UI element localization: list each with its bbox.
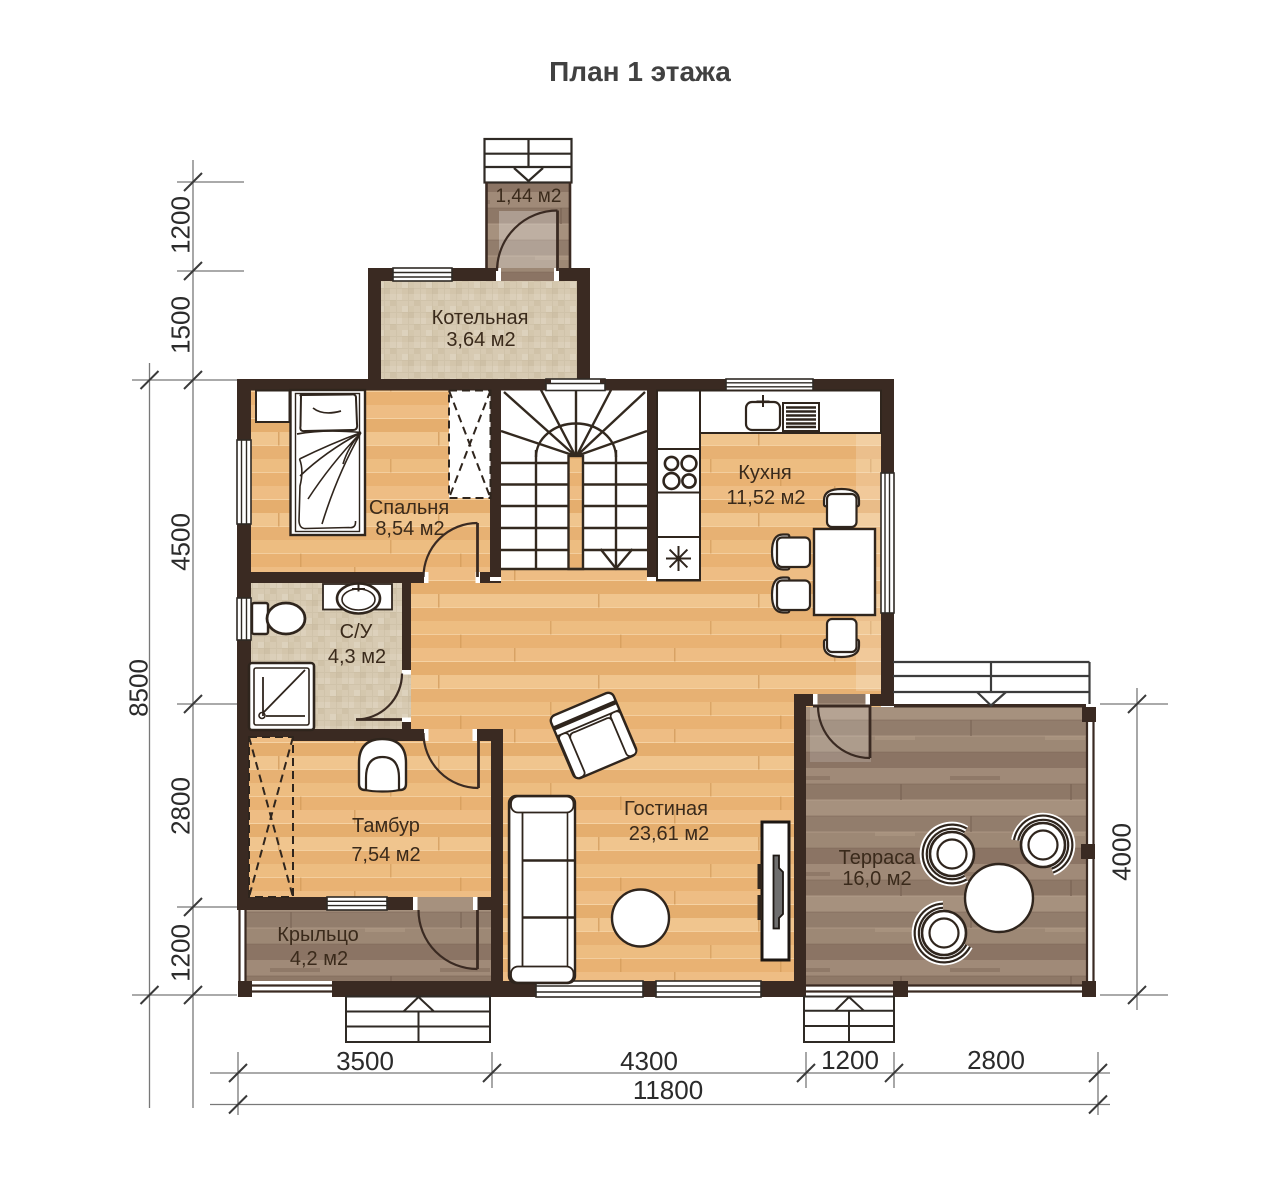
svg-text:4500: 4500 bbox=[166, 513, 196, 571]
svg-text:8,54 м2: 8,54 м2 bbox=[375, 518, 444, 540]
svg-text:С/У: С/У bbox=[340, 621, 373, 643]
svg-text:2800: 2800 bbox=[967, 1045, 1025, 1075]
svg-text:4000: 4000 bbox=[1107, 823, 1137, 881]
svg-text:16,0 м2: 16,0 м2 bbox=[842, 868, 911, 890]
svg-text:23,61 м2: 23,61 м2 bbox=[629, 823, 709, 845]
svg-text:4,3 м2: 4,3 м2 bbox=[328, 646, 386, 668]
svg-text:8500: 8500 bbox=[124, 659, 154, 717]
svg-text:11800: 11800 bbox=[633, 1075, 703, 1105]
svg-text:4,2 м2: 4,2 м2 bbox=[290, 948, 348, 970]
svg-text:3,64 м2: 3,64 м2 bbox=[446, 329, 515, 351]
svg-text:1200: 1200 bbox=[166, 196, 196, 254]
svg-text:4300: 4300 bbox=[620, 1046, 678, 1076]
svg-text:1,44 м2: 1,44 м2 bbox=[496, 186, 562, 207]
svg-text:План 1 этажа: План 1 этажа bbox=[549, 56, 731, 87]
svg-text:3500: 3500 bbox=[336, 1046, 394, 1076]
svg-text:2800: 2800 bbox=[166, 777, 196, 835]
svg-text:Терраса: Терраса bbox=[839, 847, 917, 869]
svg-text:Кухня: Кухня bbox=[738, 462, 792, 484]
svg-text:Спальня: Спальня bbox=[369, 497, 449, 519]
svg-text:Гостиная: Гостиная bbox=[624, 798, 708, 820]
svg-text:11,52 м2: 11,52 м2 bbox=[727, 487, 806, 509]
svg-text:Котельная: Котельная bbox=[432, 307, 529, 329]
svg-text:1200: 1200 bbox=[166, 924, 196, 982]
svg-text:1500: 1500 bbox=[166, 296, 196, 354]
svg-text:1200: 1200 bbox=[821, 1045, 879, 1075]
svg-text:Тамбур: Тамбур bbox=[352, 815, 420, 837]
svg-text:7,54 м2: 7,54 м2 bbox=[351, 844, 420, 866]
svg-text:Крыльцо: Крыльцо bbox=[277, 924, 359, 946]
